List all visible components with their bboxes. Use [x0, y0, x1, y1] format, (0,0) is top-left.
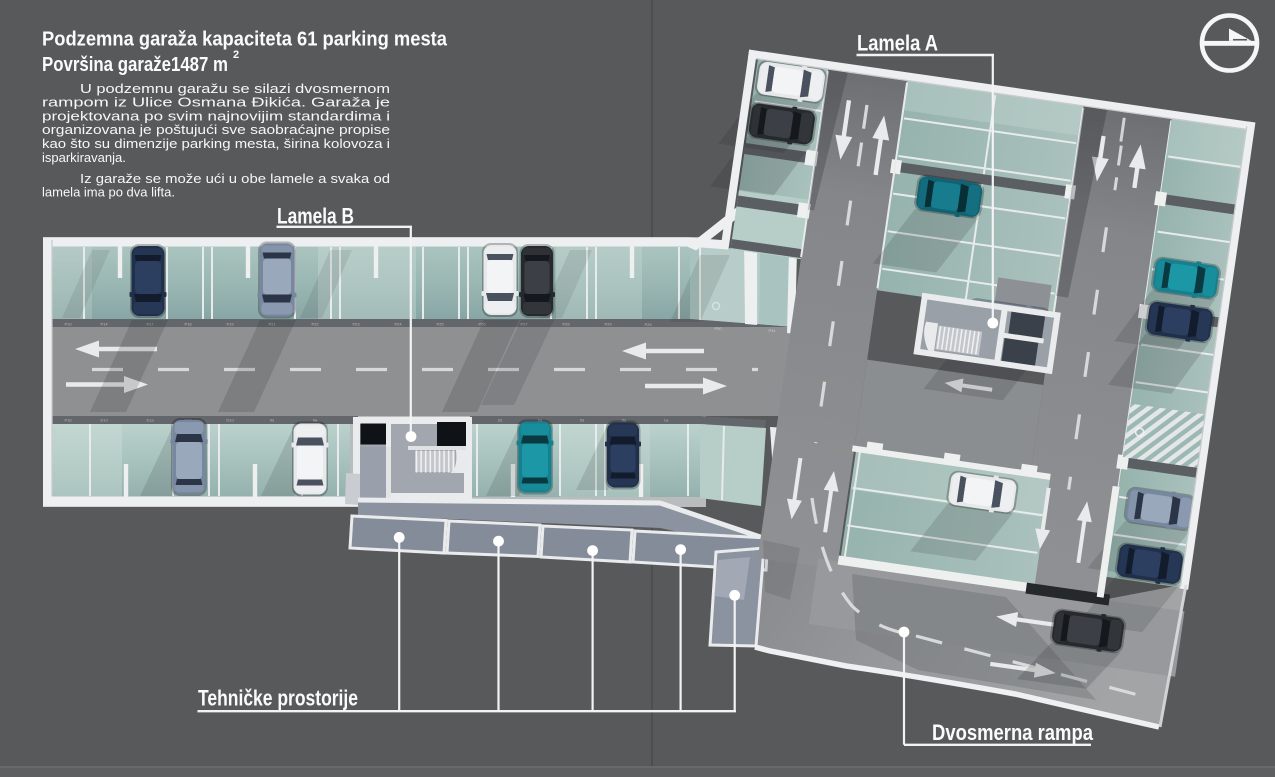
svg-text:9d: 9d — [270, 418, 274, 423]
svg-text:P31: P31 — [768, 328, 776, 333]
svg-text:1a: 1a — [664, 418, 669, 423]
svg-text:Dvosmerna rampa: Dvosmerna rampa — [932, 720, 1093, 745]
svg-text:P10: P10 — [64, 322, 72, 327]
svg-text:P25: P25 — [436, 322, 444, 327]
svg-text:P28: P28 — [562, 322, 570, 327]
svg-text:rampom iz Ulice Osmana Đikića.: rampom iz Ulice Osmana Đikića. Garaža je — [42, 95, 390, 110]
svg-text:P29: P29 — [644, 322, 652, 327]
svg-text:P19: P19 — [226, 322, 234, 327]
svg-text:P14: P14 — [100, 322, 108, 327]
svg-text:P18: P18 — [184, 322, 192, 327]
svg-text:Lamela B: Lamela B — [277, 204, 354, 229]
svg-text:2: 2 — [233, 49, 239, 61]
svg-text:kao što su dimenzije parking m: kao što su dimenzije parking mesta, širi… — [42, 136, 390, 151]
svg-text:Podzemna garaža kapaciteta 61: Podzemna garaža kapaciteta 61 parking me… — [42, 29, 448, 51]
svg-text:P16: P16 — [64, 418, 72, 423]
svg-text:isparkiravanja.: isparkiravanja. — [42, 150, 126, 165]
svg-text:2d: 2d — [498, 418, 502, 423]
svg-text:organizovana je poštujući sve: organizovana je poštujući sve saobraćajn… — [42, 122, 390, 137]
svg-text:projektovana po svim najnoviji: projektovana po svim najnovijim standard… — [42, 108, 390, 123]
svg-text:P30: P30 — [714, 326, 722, 331]
svg-text:Lamela A: Lamela A — [857, 31, 938, 56]
svg-text:E1a: E1a — [146, 418, 154, 423]
svg-text:5d: 5d — [580, 418, 584, 423]
svg-text:U podzemnu garažu se silazi dv: U podzemnu garažu se silazi dvosmernom — [80, 81, 390, 96]
svg-text:D1d: D1d — [226, 418, 233, 423]
svg-text:Tehničke prostorije: Tehničke prostorije — [198, 686, 358, 711]
svg-text:lamela ima po dva lifta.: lamela ima po dva lifta. — [42, 185, 175, 200]
svg-text:P24: P24 — [394, 322, 402, 327]
svg-text:P22: P22 — [311, 322, 319, 327]
svg-text:E1d: E1d — [100, 418, 107, 423]
svg-text:Površina garaže1487 m: Površina garaže1487 m — [42, 54, 228, 76]
svg-text:P29: P29 — [604, 322, 612, 327]
svg-text:P23: P23 — [352, 322, 360, 327]
